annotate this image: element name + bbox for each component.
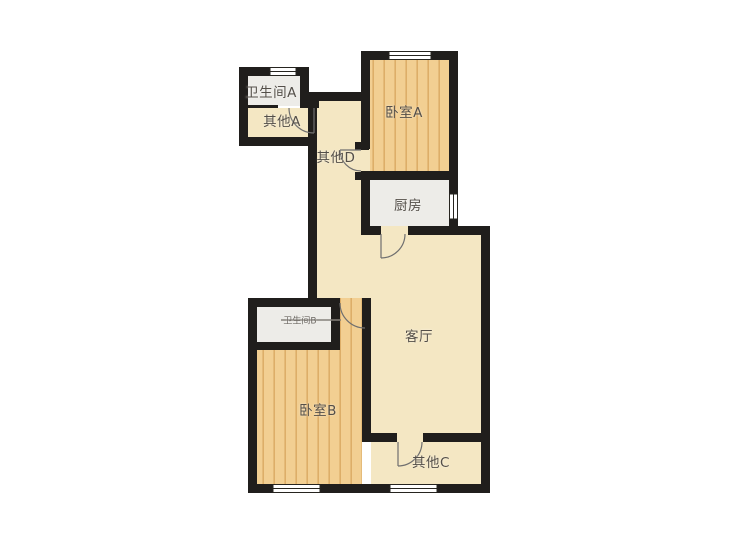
room-label-bathroom-a: 卫生间A [245,81,297,101]
bedroom-a-door-threshold [361,149,371,172]
bedroom-b-door-threshold [340,298,362,307]
room-label-other-c: 其他C [412,451,450,471]
living-room-floor-lower [371,298,481,433]
room-label-kitchen: 厨房 [394,194,422,214]
window-symbol-bedroom-b [273,485,320,493]
room-label-bedroom-a: 卧室A [385,101,423,121]
floorplan-drawing [0,0,729,547]
living-room-floor-upper [317,235,481,298]
kitchen-door-threshold [381,226,408,235]
window-symbol-bedroom-a [389,52,431,60]
room-label-bedroom-b: 卧室B [299,399,337,419]
room-label-living-room: 客厅 [405,325,433,345]
bedroom-b-nook-floor [340,307,362,350]
window-symbol-bathroom-a [270,68,296,76]
room-label-other-d: 其他D [317,146,356,166]
floorplan-canvas: 卫生间A 其他A 其他D 卧室A 厨房 客厅 卫生间B 卧室B 其他C [0,0,729,547]
window-symbol-kitchen [450,194,458,219]
window-symbol-other-c [390,485,437,493]
hallway-floor [317,101,361,235]
other-c-door-threshold [397,433,423,442]
room-label-other-a: 其他A [263,110,301,130]
room-label-bathroom-b: 卫生间B [283,314,316,327]
